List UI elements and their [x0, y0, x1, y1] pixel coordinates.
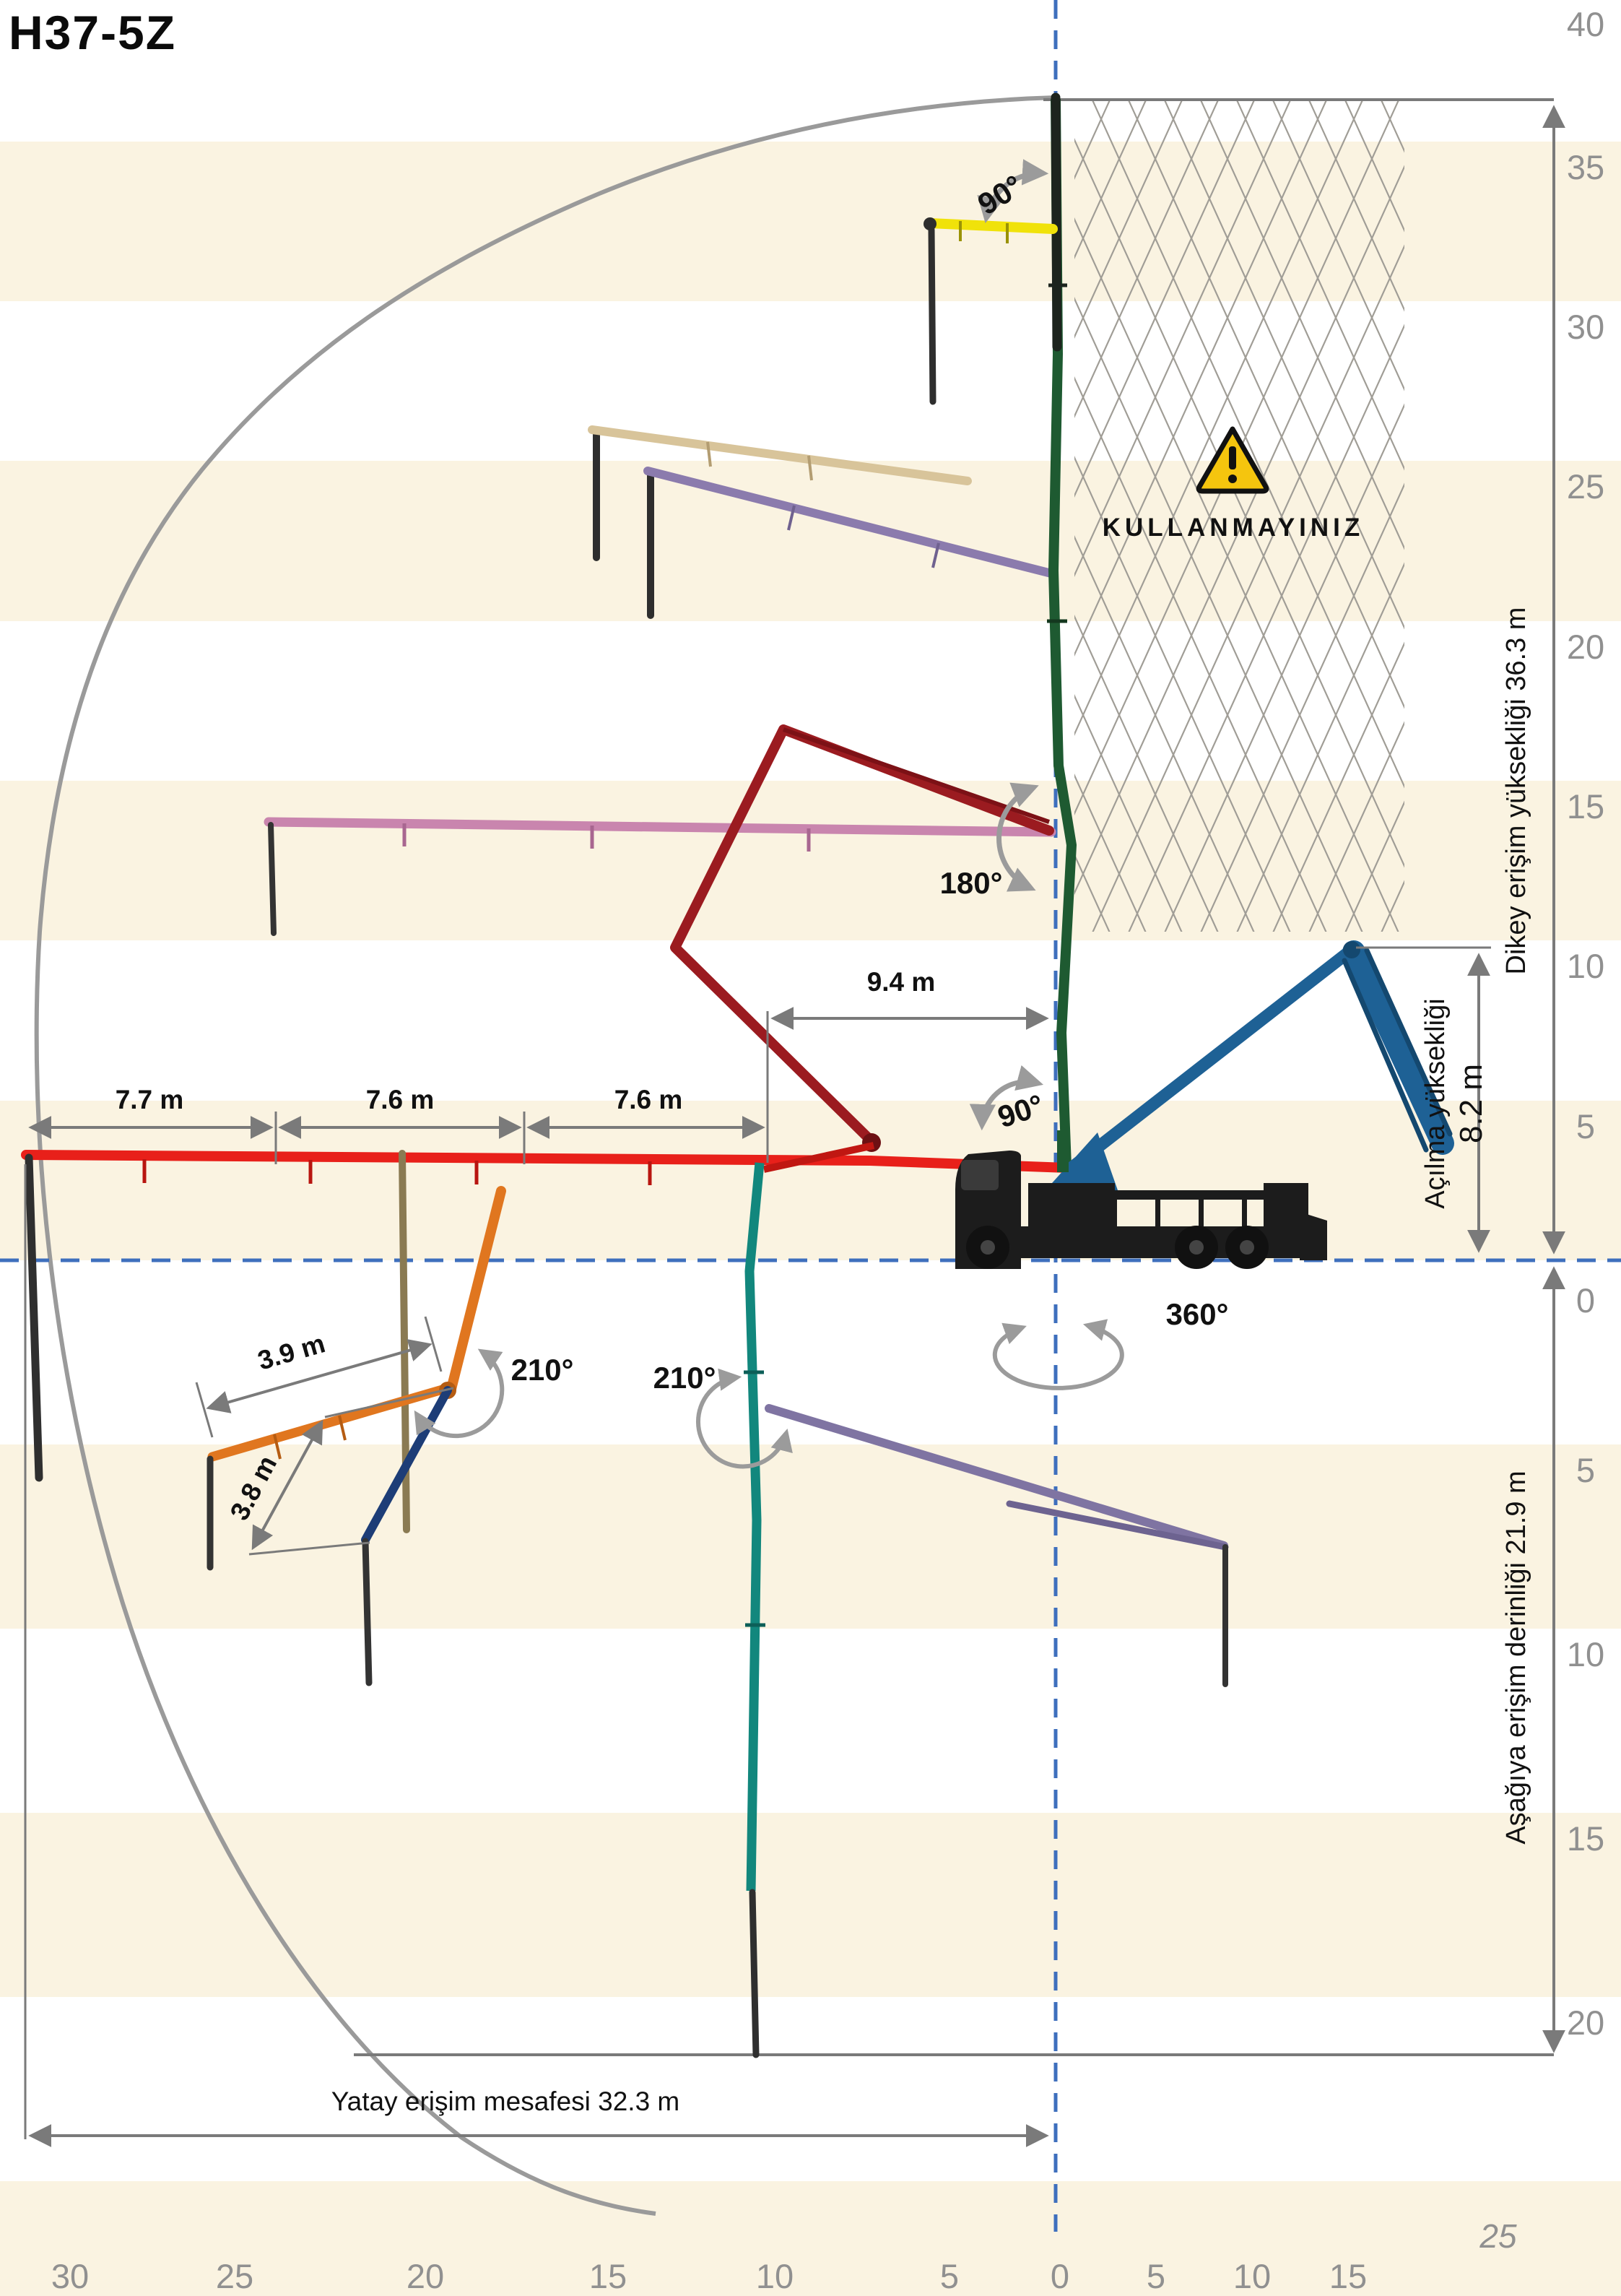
vertical-reach-label: Dikey erişim yüksekliği 36.3 m	[1501, 607, 1531, 975]
dim-7-7-label: 7.7 m	[116, 1085, 184, 1114]
angle-360-label: 360°	[1166, 1297, 1229, 1331]
axis-label: 25	[1479, 2217, 1517, 2255]
axis-label: 25	[216, 2257, 253, 2295]
angle-180-label: 180°	[940, 866, 1003, 900]
axis-label: 15	[589, 2257, 627, 2295]
working-range-diagram: 9.4 m 7.7 m 7.6 m 7.6 m 3.9 m 3.8 m Açıl…	[0, 0, 1621, 2296]
axis-label: 5	[1576, 1451, 1595, 1489]
axis-label: 10	[1233, 2257, 1271, 2295]
axis-label: 30	[1567, 308, 1604, 346]
dim-3-9-label: 3.9 m	[254, 1328, 328, 1375]
diagram-canvas: 9.4 m 7.7 m 7.6 m 7.6 m 3.9 m 3.8 m Açıl…	[0, 0, 1621, 2296]
axis-label: 30	[51, 2257, 89, 2295]
turret-green-base	[1057, 1130, 1069, 1172]
angle-210-teal-label: 210°	[653, 1361, 716, 1395]
axis-label: 20	[407, 2257, 444, 2295]
arc-360-slew	[995, 1325, 1122, 1388]
axis-label: 20	[1567, 2003, 1604, 2042]
axis-label: 10	[756, 2257, 794, 2295]
axis-label: 15	[1329, 2257, 1367, 2295]
angle-210-orange-label: 210°	[511, 1353, 574, 1387]
unfold-height-value: 8.2 m	[1453, 1064, 1489, 1143]
axis-label: 0	[1576, 1281, 1595, 1320]
downward-reach-label: Aşağıya erişim derinliği 21.9 m	[1501, 1470, 1531, 1844]
axis-label: 5	[940, 2257, 959, 2295]
turret-block	[1028, 1183, 1115, 1229]
axis-label: 15	[1567, 1819, 1604, 1858]
page-title: H37-5Z	[9, 6, 176, 59]
warning-text: KULLANMAYINIZ	[1103, 514, 1365, 542]
unfold-height-label: Açılma yüksekliği	[1420, 998, 1451, 1208]
ext-tick-3-9-a	[196, 1382, 212, 1437]
axis-label: 25	[1567, 467, 1604, 506]
horizontal-reach-label: Yatay erişim mesafesi 32.3 m	[331, 2087, 680, 2116]
axis-label: 10	[1567, 1635, 1604, 1673]
axis-label: 5	[1147, 2257, 1165, 2295]
axis-label: 15	[1567, 787, 1604, 826]
axis-label: 10	[1567, 947, 1604, 985]
cab-window	[961, 1160, 999, 1190]
dim-7-6a-label: 7.6 m	[366, 1085, 435, 1114]
axis-label: 40	[1567, 5, 1604, 43]
dim-9-4-label: 9.4 m	[867, 967, 936, 997]
axis-label: 35	[1567, 148, 1604, 186]
dim-7-6b-label: 7.6 m	[614, 1085, 683, 1114]
axis-label: 5	[1576, 1107, 1595, 1145]
axis-label: 0	[1051, 2257, 1069, 2295]
axis-label: 20	[1567, 628, 1604, 666]
